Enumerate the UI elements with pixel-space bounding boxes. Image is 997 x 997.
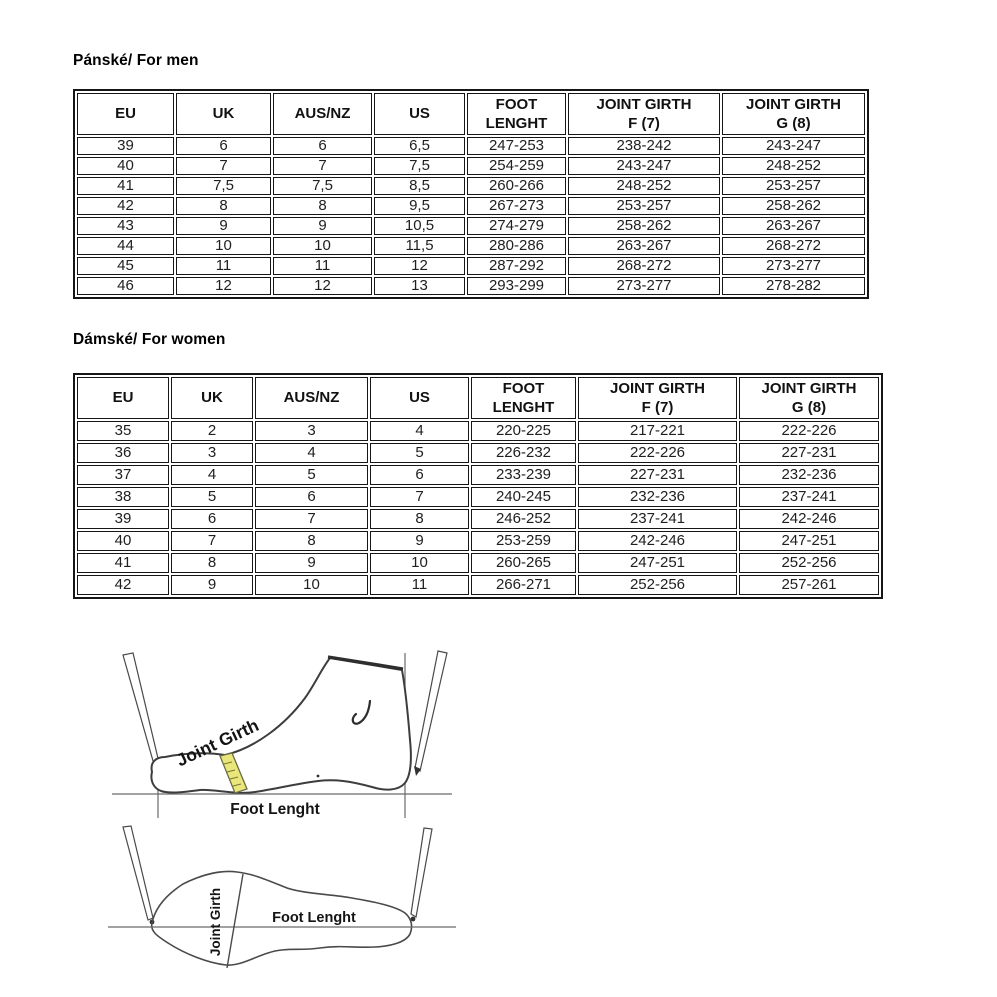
- table-cell: 258-262: [722, 197, 865, 215]
- table-cell: 253-259: [471, 531, 576, 551]
- table-cell: 9: [255, 553, 368, 573]
- table-cell: 240-245: [471, 487, 576, 507]
- table-cell: 258-262: [568, 217, 720, 235]
- table-row: 40789253-259242-246247-251: [77, 531, 879, 551]
- table-cell: 8: [273, 197, 372, 215]
- men-size-table: EUUKAUS/NZUSFOOT LENGHTJOINT GIRTH F (7)…: [73, 89, 869, 299]
- column-header: US: [374, 93, 465, 135]
- table-cell: 226-232: [471, 443, 576, 463]
- table-cell: 10,5: [374, 217, 465, 235]
- table-cell: 10: [370, 553, 469, 573]
- table-cell: 8: [255, 531, 368, 551]
- table-cell: 237-241: [578, 509, 737, 529]
- table-cell: 242-246: [739, 509, 879, 529]
- pencil-marker-left-icon: [123, 653, 161, 775]
- table-cell: 7: [176, 157, 271, 175]
- column-header: EU: [77, 377, 169, 419]
- size-chart-page: Pánské/ For men EUUKAUS/NZUSFOOT LENGHTJ…: [0, 0, 997, 997]
- table-cell: 252-256: [578, 575, 737, 595]
- column-header: AUS/NZ: [255, 377, 368, 419]
- table-cell: 8,5: [374, 177, 465, 195]
- table-row: 39666,5247-253238-242243-247: [77, 137, 865, 155]
- men-section-title: Pánské/ For men: [73, 52, 199, 70]
- table-cell: 260-265: [471, 553, 576, 573]
- table-cell: 7: [370, 487, 469, 507]
- column-header: JOINT GIRTH G (8): [722, 93, 865, 135]
- column-header: EU: [77, 93, 174, 135]
- side-view-foot-length-label: Foot Lenght: [230, 801, 320, 818]
- table-cell: 37: [77, 465, 169, 485]
- table-cell: 237-241: [739, 487, 879, 507]
- table-row: 44101011,5280-286263-267268-272: [77, 237, 865, 255]
- table-cell: 222-226: [578, 443, 737, 463]
- table-row: 35234220-225217-221222-226: [77, 421, 879, 441]
- table-cell: 268-272: [568, 257, 720, 275]
- table-cell: 6: [176, 137, 271, 155]
- table-cell: 11: [176, 257, 271, 275]
- table-cell: 246-252: [471, 509, 576, 529]
- column-header: FOOT LENGHT: [471, 377, 576, 419]
- sole-dot: [317, 775, 320, 778]
- table-cell: 7,5: [374, 157, 465, 175]
- column-header: JOINT GIRTH G (8): [739, 377, 879, 419]
- table-cell: 35: [77, 421, 169, 441]
- table-cell: 10: [255, 575, 368, 595]
- table-row: 45111112287-292268-272273-277: [77, 257, 865, 275]
- table-cell: 9,5: [374, 197, 465, 215]
- top-view-joint-girth-label: Joint Girth: [208, 888, 223, 956]
- table-cell: 232-236: [739, 465, 879, 485]
- table-cell: 247-253: [467, 137, 566, 155]
- table-cell: 7: [171, 531, 253, 551]
- table-cell: 263-267: [722, 217, 865, 235]
- pencil-marker-left-icon: [123, 826, 153, 920]
- table-cell: 43: [77, 217, 174, 235]
- table-cell: 5: [255, 465, 368, 485]
- table-cell: 9: [273, 217, 372, 235]
- table-cell: 4: [171, 465, 253, 485]
- table-cell: 233-239: [471, 465, 576, 485]
- table-cell: 278-282: [722, 277, 865, 295]
- table-cell: 8: [171, 553, 253, 573]
- women-size-table: EUUKAUS/NZUSFOOT LENGHTJOINT GIRTH F (7)…: [73, 373, 883, 599]
- table-row: 38567240-245232-236237-241: [77, 487, 879, 507]
- table-cell: 254-259: [467, 157, 566, 175]
- table-cell: 217-221: [578, 421, 737, 441]
- table-cell: 273-277: [722, 257, 865, 275]
- foot-side-view-diagram: Joint Girth Foot Lenght: [100, 640, 470, 825]
- table-cell: 274-279: [467, 217, 566, 235]
- table-row: 418910260-265247-251252-256: [77, 553, 879, 573]
- table-row: 36345226-232222-226227-231: [77, 443, 879, 463]
- table-cell: 293-299: [467, 277, 566, 295]
- table-row: 39678246-252237-241242-246: [77, 509, 879, 529]
- table-cell: 7,5: [273, 177, 372, 195]
- table-cell: 12: [176, 277, 271, 295]
- table-cell: 3: [171, 443, 253, 463]
- table-cell: 7: [273, 157, 372, 175]
- table-cell: 46: [77, 277, 174, 295]
- table-cell: 9: [171, 575, 253, 595]
- table-cell: 247-251: [739, 531, 879, 551]
- table-cell: 42: [77, 197, 174, 215]
- table-cell: 10: [273, 237, 372, 255]
- table-cell: 41: [77, 553, 169, 573]
- table-row: 4291011266-271252-256257-261: [77, 575, 879, 595]
- joint-girth-line: [227, 874, 243, 968]
- table-cell: 280-286: [467, 237, 566, 255]
- table-cell: 9: [370, 531, 469, 551]
- top-view-foot-length-label: Foot Lenght: [272, 910, 356, 926]
- column-header: US: [370, 377, 469, 419]
- table-cell: 266-271: [471, 575, 576, 595]
- table-cell: 242-246: [578, 531, 737, 551]
- women-section-title: Dámské/ For women: [73, 331, 225, 349]
- table-cell: 11,5: [374, 237, 465, 255]
- table-cell: 45: [77, 257, 174, 275]
- table-cell: 232-236: [578, 487, 737, 507]
- table-cell: 44: [77, 237, 174, 255]
- table-cell: 39: [77, 509, 169, 529]
- table-cell: 268-272: [722, 237, 865, 255]
- table-cell: 11: [273, 257, 372, 275]
- table-cell: 7,5: [176, 177, 271, 195]
- table-cell: 6: [255, 487, 368, 507]
- table-cell: 243-247: [568, 157, 720, 175]
- table-cell: 2: [171, 421, 253, 441]
- column-header: AUS/NZ: [273, 93, 372, 135]
- table-cell: 13: [374, 277, 465, 295]
- table-row: 439910,5274-279258-262263-267: [77, 217, 865, 235]
- table-cell: 12: [374, 257, 465, 275]
- table-cell: 5: [370, 443, 469, 463]
- table-cell: 248-252: [568, 177, 720, 195]
- table-cell: 9: [176, 217, 271, 235]
- table-cell: 41: [77, 177, 174, 195]
- table-cell: 263-267: [568, 237, 720, 255]
- table-row: 417,57,58,5260-266248-252253-257: [77, 177, 865, 195]
- table-cell: 267-273: [467, 197, 566, 215]
- table-cell: 260-266: [467, 177, 566, 195]
- table-cell: 10: [176, 237, 271, 255]
- foot-top-view-diagram: Joint Girth Foot Lenght: [100, 818, 470, 978]
- column-header: UK: [176, 93, 271, 135]
- table-cell: 42: [77, 575, 169, 595]
- foot-outline: [151, 658, 411, 793]
- table-cell: 5: [171, 487, 253, 507]
- table-row: 37456233-239227-231232-236: [77, 465, 879, 485]
- table-cell: 38: [77, 487, 169, 507]
- table-cell: 40: [77, 531, 169, 551]
- table-cell: 238-242: [568, 137, 720, 155]
- table-cell: 227-231: [739, 443, 879, 463]
- table-cell: 6: [171, 509, 253, 529]
- table-cell: 7: [255, 509, 368, 529]
- table-cell: 6,5: [374, 137, 465, 155]
- column-header: FOOT LENGHT: [467, 93, 566, 135]
- table-cell: 6: [370, 465, 469, 485]
- table-cell: 12: [273, 277, 372, 295]
- table-cell: 8: [176, 197, 271, 215]
- table-cell: 227-231: [578, 465, 737, 485]
- table-cell: 220-225: [471, 421, 576, 441]
- table-cell: 4: [370, 421, 469, 441]
- table-cell: 243-247: [722, 137, 865, 155]
- table-row: 40777,5254-259243-247248-252: [77, 157, 865, 175]
- table-cell: 257-261: [739, 575, 879, 595]
- table-cell: 11: [370, 575, 469, 595]
- table-cell: 252-256: [739, 553, 879, 573]
- table-cell: 287-292: [467, 257, 566, 275]
- table-cell: 39: [77, 137, 174, 155]
- men-table-header-row: EUUKAUS/NZUSFOOT LENGHTJOINT GIRTH F (7)…: [77, 93, 865, 135]
- pencil-marker-right-icon: [415, 651, 447, 771]
- table-cell: 248-252: [722, 157, 865, 175]
- column-header: UK: [171, 377, 253, 419]
- table-cell: 6: [273, 137, 372, 155]
- column-header: JOINT GIRTH F (7): [568, 93, 720, 135]
- table-row: 42889,5267-273253-257258-262: [77, 197, 865, 215]
- table-cell: 36: [77, 443, 169, 463]
- column-header: JOINT GIRTH F (7): [578, 377, 737, 419]
- table-row: 46121213293-299273-277278-282: [77, 277, 865, 295]
- table-cell: 8: [370, 509, 469, 529]
- table-cell: 253-257: [722, 177, 865, 195]
- table-cell: 3: [255, 421, 368, 441]
- table-cell: 40: [77, 157, 174, 175]
- table-cell: 273-277: [568, 277, 720, 295]
- table-cell: 247-251: [578, 553, 737, 573]
- table-cell: 222-226: [739, 421, 879, 441]
- table-cell: 253-257: [568, 197, 720, 215]
- table-cell: 4: [255, 443, 368, 463]
- pencil-marker-right-icon: [411, 828, 432, 917]
- women-table-header-row: EUUKAUS/NZUSFOOT LENGHTJOINT GIRTH F (7)…: [77, 377, 879, 419]
